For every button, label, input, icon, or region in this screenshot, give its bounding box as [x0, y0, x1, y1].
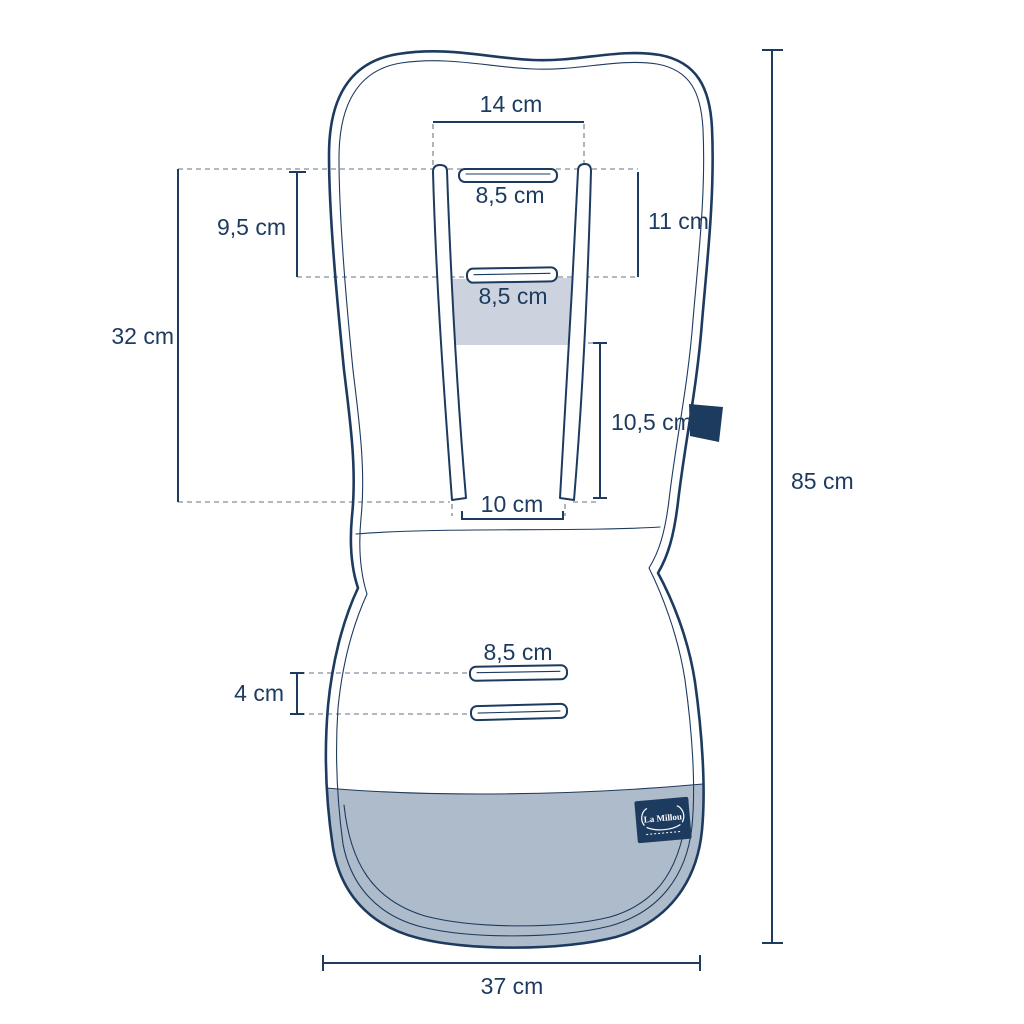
dim-label-total-length: 85 cm	[791, 468, 854, 494]
slot-mid	[467, 267, 557, 283]
dim-line-10-5cm	[593, 343, 607, 498]
guide-lines-seat-slots	[300, 673, 470, 714]
slot-seat-upper	[470, 665, 567, 681]
dim-line-85cm	[762, 50, 783, 943]
dim-label-top-slot-width: 8,5 cm	[475, 182, 544, 208]
dim-label-mid-slot-width: 8,5 cm	[478, 283, 547, 309]
waist-seam-line	[356, 527, 660, 534]
dim-label-seat-slots-gap: 4 cm	[234, 680, 284, 706]
dim-line-4cm	[290, 673, 304, 714]
slot-top	[459, 169, 557, 182]
dim-label-seat-slot-width: 8,5 cm	[483, 639, 552, 665]
dim-label-total-width: 37 cm	[481, 973, 544, 999]
dim-label-backrest-height: 32 cm	[111, 323, 174, 349]
dim-label-top-slots-gap: 11 cm	[648, 208, 709, 234]
dim-line-37cm	[323, 955, 700, 971]
guide-verticals-14cm	[433, 124, 584, 169]
diagram-canvas: La Millou 14 cm 8,5 cm 9,5 cm 11 cm 8,5 …	[0, 0, 1024, 1024]
side-tab	[689, 404, 723, 442]
dim-label-strap-bottom-gap: 10 cm	[481, 491, 544, 517]
dim-label-top-slot-span: 14 cm	[480, 91, 543, 117]
brand-logo-patch: La Millou	[634, 797, 691, 844]
dim-line-9-5cm	[289, 172, 306, 277]
stroller-pad-diagram: La Millou 14 cm 8,5 cm 9,5 cm 11 cm 8,5 …	[0, 0, 1024, 1024]
slot-seat-lower	[471, 704, 567, 721]
dim-label-headrest-height: 9,5 cm	[217, 214, 286, 240]
dim-label-lower-strap-length: 10,5 cm	[611, 409, 693, 435]
